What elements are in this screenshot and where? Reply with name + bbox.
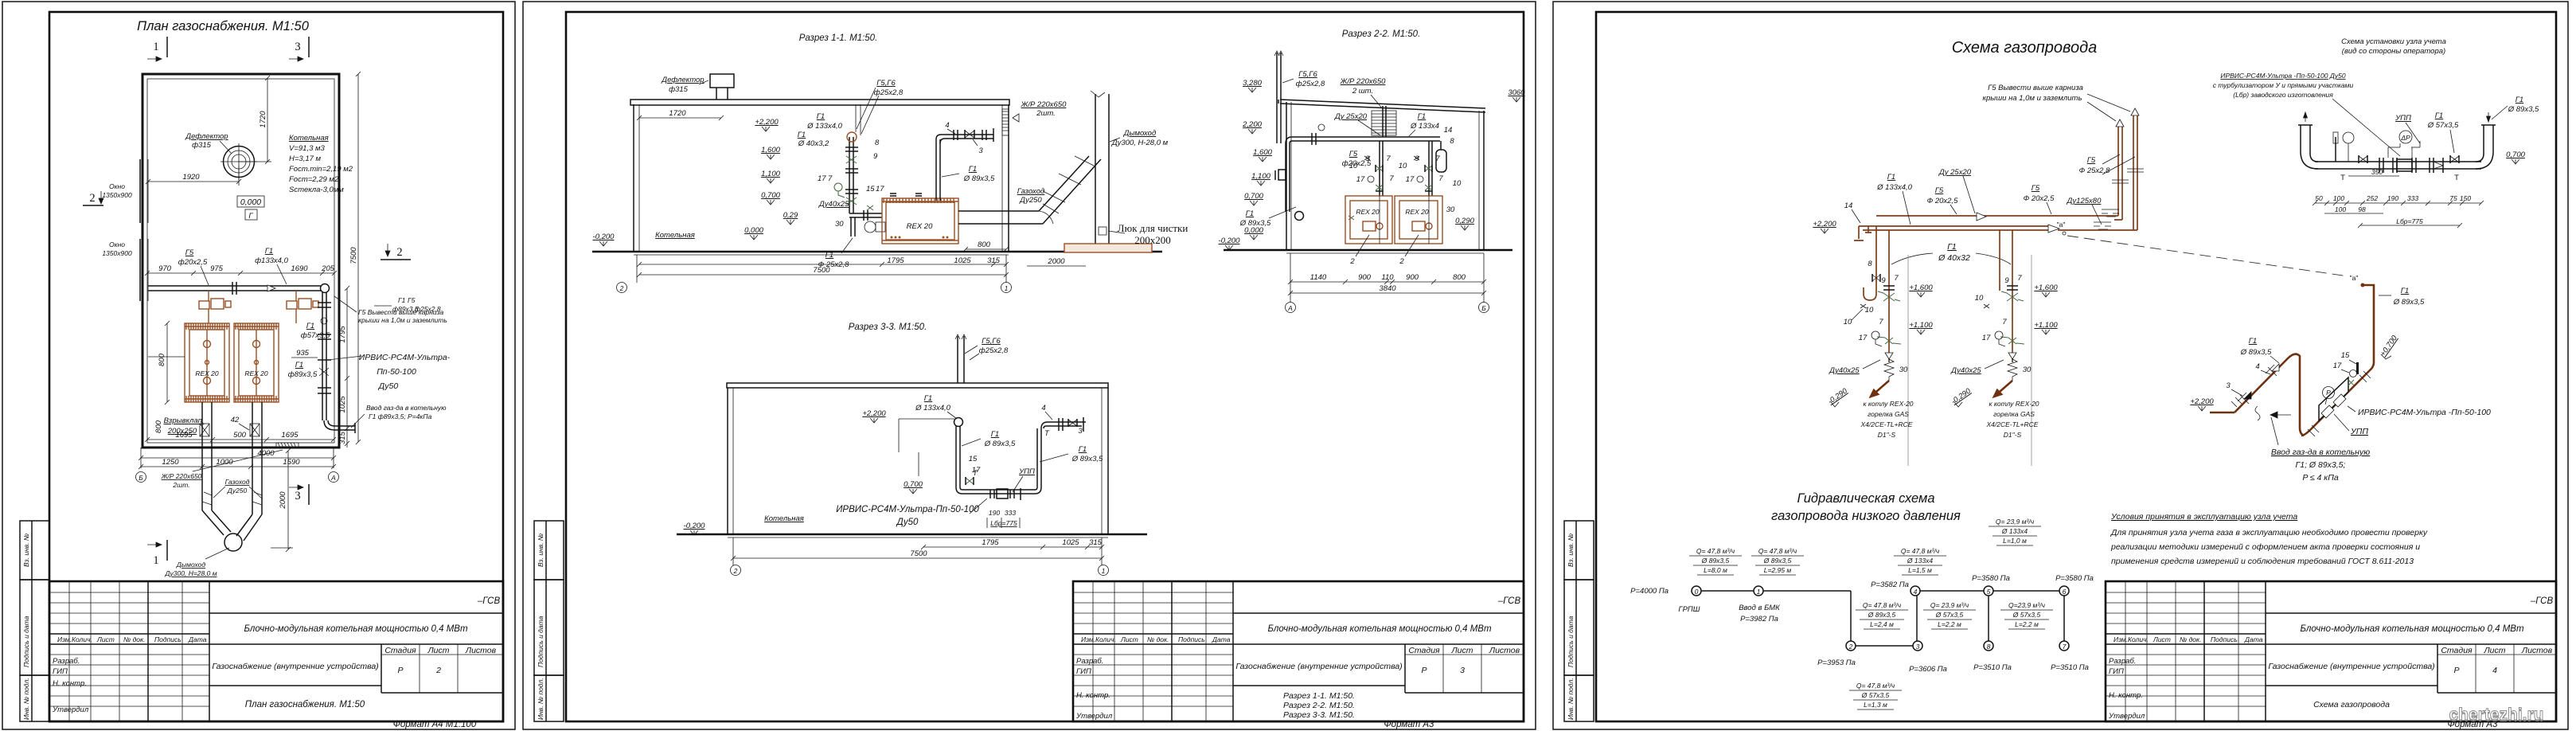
svg-text:98: 98 — [2358, 205, 2366, 213]
svg-text:1025: 1025 — [1062, 538, 1079, 547]
svg-text:H=3,17 м: H=3,17 м — [289, 154, 322, 163]
svg-text:17: 17 — [972, 466, 981, 475]
svg-text:Ж/Р 220х650: Ж/Р 220х650 — [161, 472, 202, 480]
svg-text:применения средств измерений и: применения средств измерений и соблюдени… — [2111, 557, 2414, 566]
svg-text:Подпись и дата: Подпись и дата — [22, 616, 30, 667]
svg-text:Разрез 3-3. М1:50.: Разрез 3-3. М1:50. — [849, 322, 927, 332]
svg-text:Подпись: Подпись — [154, 635, 181, 643]
svg-text:30: 30 — [1446, 205, 1455, 214]
svg-text:Г1: Г1 — [2401, 287, 2409, 295]
svg-text:Р=3510 Па: Р=3510 Па — [2051, 663, 2089, 672]
svg-text:Г1: Г1 — [398, 296, 406, 304]
svg-text:реализации методики измерений: реализации методики измерений с оформлен… — [2110, 542, 2420, 552]
svg-text:0: 0 — [1695, 588, 1699, 596]
svg-text:Взрывклап.: Взрывклап. — [164, 416, 205, 425]
svg-text:10: 10 — [1399, 162, 1407, 170]
svg-text:ф25х2,8: ф25х2,8 — [1296, 80, 1325, 88]
svg-text:ГИП: ГИП — [2109, 667, 2124, 676]
svg-text:REX 20: REX 20 — [907, 222, 933, 231]
svg-text:Ø 89х3,5: Ø 89х3,5 — [963, 174, 995, 183]
svg-text:крыши на 1,0м и заземлить: крыши на 1,0м и заземлить — [358, 316, 447, 324]
svg-text:ф25х2,8: ф25х2,8 — [874, 88, 904, 97]
svg-text:10: 10 — [1865, 306, 1874, 315]
svg-text:Н. контр.: Н. контр. — [53, 679, 87, 688]
svg-text:3: 3 — [295, 41, 300, 53]
svg-text:Условия принятия в эксплуатаци: Условия принятия в эксплуатацию узла уче… — [2110, 512, 2297, 522]
svg-text:Ж/Р 220х650: Ж/Р 220х650 — [1021, 100, 1067, 109]
svg-text:Изм.: Изм. — [2113, 635, 2128, 643]
svg-text:Лист: Лист — [1450, 646, 1473, 655]
svg-text:Разраб.: Разраб. — [53, 657, 80, 666]
svg-text:Ø 89х3,5: Ø 89х3,5 — [1239, 219, 1271, 228]
svg-text:2шт.: 2шт. — [1036, 109, 1056, 118]
svg-text:Р: Р — [397, 666, 403, 675]
svg-text:7: 7 — [1435, 154, 1440, 163]
svg-text:ф25х2,8: ф25х2,8 — [979, 346, 1009, 355]
svg-text:Г1: Г1 — [798, 131, 806, 139]
svg-text:Sстекла-3,0мм: Sстекла-3,0мм — [289, 186, 344, 194]
svg-text:8: 8 — [1868, 260, 1872, 268]
svg-text:Колич.: Колич. — [2128, 635, 2149, 643]
svg-text:Пп-50-100: Пп-50-100 — [377, 367, 416, 377]
svg-text:Подпись: Подпись — [2211, 635, 2238, 643]
svg-text:Листов: Листов — [1489, 646, 1520, 655]
svg-text:L=1,0 м: L=1,0 м — [2003, 537, 2027, 545]
svg-text:Дымоход: Дымоход — [176, 561, 205, 569]
svg-text:Р: Р — [1421, 666, 1427, 675]
svg-text:2: 2 — [89, 192, 95, 205]
svg-text:REX 20: REX 20 — [195, 369, 219, 377]
svg-text:Изм.: Изм. — [1081, 635, 1095, 643]
svg-text:1025: 1025 — [338, 396, 347, 413]
svg-text:Ду40х25: Ду40х25 — [818, 200, 849, 209]
svg-text:3060: 3060 — [1508, 88, 1525, 97]
svg-text:газопровода низкого давления: газопровода низкого давления — [1771, 509, 1961, 523]
svg-text:10: 10 — [1349, 162, 1358, 170]
svg-text:7: 7 — [828, 174, 833, 183]
svg-text:Разрез 2-2. М1:50.: Разрез 2-2. М1:50. — [1342, 29, 1421, 39]
svg-text:ф315: ф315 — [669, 85, 689, 94]
svg-text:0,700: 0,700 — [761, 191, 780, 200]
svg-text:P ≤ 4 кПа: P ≤ 4 кПа — [2302, 473, 2339, 483]
svg-text:Лист: Лист — [96, 635, 115, 643]
svg-text:ф57х3,5: ф57х3,5 — [301, 331, 330, 340]
svg-text:1,600: 1,600 — [761, 146, 780, 154]
svg-text:Ø 133х4: Ø 133х4 — [1410, 122, 1439, 131]
svg-text:190: 190 — [2387, 194, 2398, 202]
svg-text:Ду125х80: Ду125х80 — [2067, 197, 2102, 205]
svg-text:17: 17 — [1859, 334, 1868, 342]
svg-text:Листов: Листов — [465, 646, 497, 655]
svg-text:0,000: 0,000 — [744, 226, 763, 235]
svg-text:X4/2CE-TL+RCE: X4/2CE-TL+RCE — [1860, 420, 1913, 428]
svg-text:Ø 133х4,0: Ø 133х4,0 — [1876, 183, 1913, 192]
svg-text:9: 9 — [1881, 276, 1886, 285]
svg-text:Г1: Г1 — [1418, 112, 1426, 121]
svg-text:D1"-S: D1"-S — [2004, 431, 2022, 439]
svg-text:Г1: Г1 — [1887, 173, 1895, 182]
svg-text:УПП: УПП — [2395, 114, 2411, 123]
svg-text:14: 14 — [1444, 126, 1453, 135]
svg-text:1: 1 — [153, 41, 158, 53]
svg-text:17: 17 — [876, 185, 884, 193]
svg-text:Колич.: Колич. — [1095, 635, 1116, 643]
svg-text:0,700: 0,700 — [2506, 150, 2525, 159]
svg-text:2: 2 — [396, 246, 402, 259]
svg-text:Ø 89х3,5: Ø 89х3,5 — [1701, 557, 1730, 565]
svg-text:Изм.: Изм. — [57, 635, 72, 643]
svg-text:Утвердил: Утвердил — [1075, 712, 1113, 721]
svg-text:Ø 89х3,5: Ø 89х3,5 — [984, 440, 1016, 448]
svg-text:Дата: Дата — [1212, 635, 1231, 643]
svg-text:Дата: Дата — [188, 635, 207, 643]
svg-text:+1,600: +1,600 — [1909, 283, 1933, 292]
svg-text:–ГСВ: –ГСВ — [477, 596, 501, 606]
svg-text:190: 190 — [989, 509, 1000, 517]
svg-text:Блочно-модульная котельная мощ: Блочно-модульная котельная мощностью 0,4… — [2300, 624, 2524, 634]
svg-text:9: 9 — [1415, 154, 1419, 163]
svg-text:горелка GAS: горелка GAS — [1993, 410, 2035, 418]
svg-text:+1,600: +1,600 — [2034, 283, 2058, 292]
svg-text:Лист: Лист — [1120, 635, 1138, 643]
svg-text:Формат А3: Формат А3 — [1384, 720, 1435, 729]
svg-text:Q= 47,8 м³/ч: Q= 47,8 м³/ч — [1901, 547, 1940, 555]
svg-text:Схема установки узла учета: Схема установки узла учета — [2341, 37, 2446, 46]
svg-text:"а": "а" — [2057, 221, 2066, 229]
svg-text:1,100: 1,100 — [1251, 172, 1270, 181]
svg-text:0,290: 0,290 — [1455, 217, 1474, 225]
svg-text:900: 900 — [1406, 273, 1419, 282]
svg-text:Q= 47,8 м³/ч: Q= 47,8 м³/ч — [1856, 682, 1895, 690]
svg-text:14: 14 — [1844, 201, 1853, 210]
svg-text:Ду250: Ду250 — [1019, 196, 1042, 205]
svg-text:Ду250: Ду250 — [227, 487, 248, 494]
svg-text:333: 333 — [2407, 194, 2418, 202]
svg-text:30: 30 — [835, 220, 844, 229]
svg-text:L=1,5 м: L=1,5 м — [1908, 566, 1932, 574]
svg-text:1795: 1795 — [982, 538, 999, 547]
svg-text:Котельная: Котельная — [655, 231, 695, 240]
svg-text:№ док.: № док. — [123, 635, 145, 643]
svg-text:Г1: Г1 — [1079, 445, 1087, 454]
svg-text:Ф 20х2,5: Ф 20х2,5 — [2024, 194, 2055, 203]
svg-text:200х200: 200х200 — [1134, 234, 1171, 246]
svg-text:Газоход: Газоход — [1017, 187, 1045, 196]
svg-text:15: 15 — [2341, 351, 2350, 360]
svg-text:Q= 23,9 м³/ч: Q= 23,9 м³/ч — [1996, 518, 2035, 526]
svg-text:Дата: Дата — [2244, 635, 2263, 643]
svg-text:(Lбр) заводского изготовления: (Lбр) заводского изготовления — [2233, 91, 2333, 99]
svg-text:3: 3 — [2226, 381, 2231, 390]
svg-text:Г5,Г6: Г5,Г6 — [1298, 70, 1317, 79]
svg-text:Ø 133х4: Ø 133х4 — [2001, 527, 2028, 535]
svg-text:ГИП: ГИП — [53, 667, 68, 676]
svg-text:Г1: Г1 — [306, 322, 314, 330]
svg-text:5: 5 — [1987, 588, 1991, 596]
svg-text:Разрез 1-1. М1:50.: Разрез 1-1. М1:50. — [799, 33, 878, 43]
svg-text:+2,200: +2,200 — [755, 118, 779, 127]
svg-text:350: 350 — [2371, 168, 2383, 176]
svg-text:2000: 2000 — [1047, 257, 1065, 266]
svg-text:Ду 25х20: Ду 25х20 — [1938, 168, 1972, 177]
svg-text:150: 150 — [2460, 194, 2471, 202]
svg-text:L=2,95 м: L=2,95 м — [1764, 566, 1792, 574]
svg-text:7: 7 — [1389, 174, 1394, 183]
svg-text:7500: 7500 — [349, 247, 358, 264]
svg-text:Ø 57х3,5: Ø 57х3,5 — [1861, 691, 1890, 699]
svg-text:Ø 89х3,5: Ø 89х3,5 — [2393, 298, 2425, 307]
svg-text:Г1: Г1 — [2435, 111, 2443, 120]
svg-text:15: 15 — [969, 455, 978, 463]
svg-text:Для принятия узла учета газа в: Для принятия узла учета газа в эксплуата… — [2110, 528, 2428, 537]
svg-text:4: 4 — [1041, 404, 1045, 412]
svg-text:1250: 1250 — [162, 458, 179, 467]
svg-text:-0,200: -0,200 — [1219, 236, 1241, 245]
svg-text:2,200: 2,200 — [1242, 120, 1262, 129]
svg-text:+2,200: +2,200 — [2190, 397, 2214, 406]
svg-text:chertezhi.ru: chertezhi.ru — [2449, 706, 2543, 724]
svg-text:2: 2 — [435, 666, 441, 675]
svg-text:9: 9 — [2004, 276, 2009, 285]
svg-text:–ГСВ: –ГСВ — [2530, 596, 2554, 606]
svg-text:Ввод газ-да в котельную: Ввод газ-да в котельную — [2271, 448, 2370, 457]
svg-text:0,29: 0,29 — [783, 211, 798, 220]
svg-text:REX 20: REX 20 — [1405, 208, 1429, 216]
svg-text:Утвердил: Утвердил — [52, 706, 89, 714]
svg-text:ф20х2,5: ф20х2,5 — [178, 258, 208, 267]
svg-text:1795: 1795 — [338, 326, 347, 343]
svg-text:-0,200: -0,200 — [593, 233, 615, 241]
svg-text:800: 800 — [978, 240, 991, 249]
svg-text:7: 7 — [1879, 318, 1883, 326]
svg-text:2шт.: 2шт. — [172, 481, 189, 489]
svg-text:ГРПШ: ГРПШ — [1678, 605, 1700, 614]
svg-text:ф315: ф315 — [192, 141, 212, 150]
svg-text:REX 20: REX 20 — [1356, 208, 1380, 216]
svg-text:Стадия: Стадия — [384, 646, 416, 655]
svg-text:крыши на 1,0м и заземлить: крыши на 1,0м и заземлить — [1983, 94, 2082, 103]
svg-text:-0,200: -0,200 — [684, 522, 706, 530]
svg-text:1720: 1720 — [259, 111, 267, 128]
svg-text:Ø 133х4: Ø 133х4 — [1907, 557, 1933, 565]
svg-text:Схема газопровода: Схема газопровода — [2313, 700, 2390, 709]
svg-text:Q= 23,9 м³/ч: Q= 23,9 м³/ч — [1930, 601, 1969, 609]
svg-text:17: 17 — [1356, 175, 1365, 184]
svg-text:Г1 ф89х3,5; Р=4кПа: Г1 ф89х3,5; Р=4кПа — [369, 412, 432, 420]
svg-text:Инв. № подл.: Инв. № подл. — [537, 678, 544, 720]
svg-text:1350х900: 1350х900 — [102, 191, 132, 199]
svg-text:9: 9 — [1365, 154, 1370, 163]
svg-text:Г1: Г1 — [265, 247, 273, 256]
svg-text:2: 2 — [1349, 257, 1355, 266]
svg-text:2000: 2000 — [279, 491, 287, 510]
svg-text:Г1: Г1 — [295, 361, 303, 369]
svg-text:L=2,2 м: L=2,2 м — [2015, 620, 2039, 628]
svg-text:Г5: Г5 — [1935, 186, 1944, 195]
svg-text:Fост.min=2,19 м2: Fост.min=2,19 м2 — [289, 165, 353, 174]
svg-text:0,700: 0,700 — [904, 480, 923, 489]
svg-text:7: 7 — [1386, 154, 1391, 163]
svg-text:Котельная: Котельная — [764, 514, 804, 523]
svg-text:+2,200: +2,200 — [862, 409, 886, 418]
svg-text:1690: 1690 — [291, 264, 308, 273]
svg-text:Р=3982 Па: Р=3982 Па — [1740, 615, 1778, 623]
svg-text:Разрез 1-1. М1:50.: Разрез 1-1. М1:50. — [1283, 691, 1355, 701]
svg-text:горелка GAS: горелка GAS — [1868, 410, 1909, 418]
svg-text:Стадия: Стадия — [1408, 646, 1440, 655]
svg-text:Дефлектор: Дефлектор — [185, 132, 228, 141]
svg-text:8: 8 — [1450, 137, 1454, 146]
svg-text:315: 315 — [338, 431, 347, 444]
svg-text:1590: 1590 — [283, 458, 300, 467]
svg-text:Ø 89х3,5: Ø 89х3,5 — [1763, 557, 1792, 565]
svg-text:17: 17 — [1982, 334, 1991, 342]
svg-text:30: 30 — [2023, 365, 2032, 374]
svg-text:№ док.: № док. — [2180, 635, 2201, 643]
svg-text:Вз. инв. №: Вз. инв. № — [537, 534, 544, 567]
svg-text:Блочно-модульная котельная мощ: Блочно-модульная котельная мощностью 0,4… — [244, 624, 468, 634]
svg-text:Гидравлическая схема: Гидравлическая схема — [1797, 491, 1934, 506]
svg-text:ИРВИС-РС4М-Ультра -Пп-50-100: ИРВИС-РС4М-Ультра -Пп-50-100 — [2358, 408, 2491, 417]
svg-text:Q=23,9 м³/ч: Q=23,9 м³/ч — [2008, 601, 2045, 609]
svg-text:Инв. № подл.: Инв. № подл. — [1567, 678, 1575, 720]
svg-text:Ø 133х4,0: Ø 133х4,0 — [806, 122, 843, 131]
svg-text:L=2,4 м: L=2,4 м — [1870, 620, 1894, 628]
svg-text:100: 100 — [2335, 205, 2346, 213]
svg-text:4: 4 — [945, 121, 949, 130]
svg-text:ΔР: ΔР — [2400, 134, 2410, 142]
svg-text:X4/2CE-TL+RCE: X4/2CE-TL+RCE — [1986, 420, 2039, 428]
svg-text:Р=3606 Па: Р=3606 Па — [1909, 665, 1947, 674]
svg-text:Р: Р — [2453, 666, 2459, 675]
svg-text:1140: 1140 — [1310, 273, 1327, 282]
svg-text:Г5: Г5 — [185, 248, 194, 257]
svg-text:1695: 1695 — [175, 431, 193, 440]
svg-text:Ø 40х3,2: Ø 40х3,2 — [798, 139, 829, 148]
svg-text:315: 315 — [987, 256, 1001, 265]
svg-text:Стадия: Стадия — [2441, 646, 2473, 655]
svg-text:110: 110 — [1381, 273, 1394, 282]
svg-text:L=8,0 м: L=8,0 м — [1704, 566, 1727, 574]
svg-text:9: 9 — [873, 152, 878, 161]
svg-text:+1,100: +1,100 — [2034, 321, 2058, 330]
svg-text:3: 3 — [295, 490, 300, 502]
svg-text:Ввод в БМК: Ввод в БМК — [1739, 604, 1781, 612]
svg-text:Колич.: Колич. — [72, 635, 92, 643]
svg-text:100: 100 — [2333, 194, 2344, 202]
svg-text:2: 2 — [1848, 643, 1853, 651]
svg-text:Р=4000 Па: Р=4000 Па — [1630, 587, 1669, 596]
svg-text:4: 4 — [2255, 362, 2259, 371]
svg-text:Г1: Г1 — [817, 112, 825, 121]
svg-text:800: 800 — [154, 420, 163, 433]
svg-text:к котлу REX-20: к котлу REX-20 — [1989, 400, 2039, 408]
svg-text:ф133х4,0: ф133х4,0 — [255, 256, 288, 265]
svg-text:Лист: Лист — [2153, 635, 2171, 643]
svg-text:Газоснабжение (внутренние устр: Газоснабжение (внутренние устройства) — [1235, 662, 1402, 671]
svg-text:4: 4 — [1914, 588, 1918, 596]
svg-text:1: 1 — [1005, 284, 1009, 292]
svg-text:Г1: Г1 — [991, 430, 999, 439]
svg-text:Г5,Г6: Г5,Г6 — [876, 79, 896, 88]
svg-text:7: 7 — [2017, 274, 2022, 283]
svg-text:252: 252 — [2366, 194, 2378, 202]
svg-text:Подпись и дата: Подпись и дата — [1567, 616, 1575, 667]
svg-text:Блочно-модульная котельная мощ: Блочно-модульная котельная мощностью 0,4… — [1267, 624, 1492, 634]
svg-text:План газоснабжения. М1:50: План газоснабжения. М1:50 — [137, 19, 310, 33]
svg-text:Разрез 2-2. М1:50.: Разрез 2-2. М1:50. — [1283, 701, 1355, 710]
svg-text:Ø 89х3,5: Ø 89х3,5 — [2240, 348, 2272, 357]
svg-text:1350х900: 1350х900 — [102, 249, 132, 257]
svg-text:Ду 25х20: Ду 25х20 — [1334, 112, 1368, 121]
svg-text:3840: 3840 — [1379, 284, 1396, 293]
svg-text:Г5,Г6: Г5,Г6 — [982, 337, 1001, 346]
svg-text:8: 8 — [875, 139, 880, 147]
svg-text:Утвердил: Утвердил — [2108, 712, 2145, 721]
svg-text:ИРВИС-РС4М-Ультра-: ИРВИС-РС4М-Ультра- — [359, 353, 451, 362]
svg-text:Подпись и дата: Подпись и дата — [537, 616, 544, 667]
svg-text:ИРВИС-РС4М-Ультра-Пп-50-100: ИРВИС-РС4М-Ультра-Пп-50-100 — [836, 505, 979, 514]
svg-text:3: 3 — [978, 147, 983, 155]
svg-text:к котлу REX-20: к котлу REX-20 — [1863, 400, 1913, 408]
svg-text:Т: Т — [2340, 174, 2345, 182]
svg-text:935: 935 — [296, 349, 310, 358]
svg-text:30: 30 — [1899, 365, 1908, 374]
svg-text:Б: Б — [139, 474, 143, 482]
svg-text:975: 975 — [210, 264, 224, 273]
svg-text:Р=3582 Па: Р=3582 Па — [1871, 580, 1909, 589]
svg-text:УПП: УПП — [2350, 427, 2368, 436]
svg-text:6: 6 — [2063, 588, 2067, 596]
svg-text:Ду40х25: Ду40х25 — [1829, 366, 1860, 375]
svg-text:1,100: 1,100 — [761, 170, 780, 178]
svg-text:Лист: Лист — [427, 646, 449, 655]
svg-text:Г1; Ø 89х3,5;: Г1; Ø 89х3,5; — [2296, 460, 2346, 470]
svg-text:Разраб.: Разраб. — [2109, 657, 2136, 666]
svg-text:ф89х3,5: ф89х3,5 — [288, 370, 318, 379]
svg-text:Схема газопровода: Схема газопровода — [1952, 39, 2098, 57]
svg-text:7500: 7500 — [813, 266, 830, 275]
svg-text:с турбулизатором У и прямыми у: с турбулизатором У и прямыми участками — [2213, 81, 2354, 89]
svg-text:2: 2 — [619, 284, 624, 292]
svg-text:Ду300, Н-28,0 м: Ду300, Н-28,0 м — [1111, 139, 1169, 147]
svg-text:Lбр=775: Lбр=775 — [990, 519, 1017, 527]
svg-text:10: 10 — [1844, 318, 1852, 326]
svg-text:3,280: 3,280 — [1243, 79, 1262, 88]
svg-text:Подпись: Подпись — [1178, 635, 1205, 643]
svg-text:+1,100: +1,100 — [1909, 321, 1933, 330]
svg-text:42: 42 — [231, 416, 240, 424]
svg-text:А: А — [1287, 304, 1293, 312]
svg-text:1695: 1695 — [281, 431, 299, 440]
svg-text:Г1: Г1 — [825, 251, 833, 260]
svg-text:Р=3580 Па: Р=3580 Па — [2055, 574, 2094, 583]
svg-text:Q= 47,8 м³/ч: Q= 47,8 м³/ч — [1863, 601, 1902, 609]
svg-text:Ду40х25: Ду40х25 — [1950, 366, 1981, 375]
svg-text:Н. контр.: Н. контр. — [1076, 691, 1110, 700]
svg-text:Ø 89х3,5: Ø 89х3,5 — [1071, 455, 1103, 463]
svg-text:1720: 1720 — [669, 109, 686, 118]
svg-text:7500: 7500 — [910, 549, 927, 558]
svg-text:Ф 25х2,8: Ф 25х2,8 — [2079, 166, 2110, 175]
svg-text:Г1: Г1 — [924, 394, 932, 403]
svg-text:1,600: 1,600 — [1253, 148, 1272, 157]
svg-text:2: 2 — [1399, 257, 1404, 266]
svg-text:10: 10 — [1453, 179, 1462, 188]
svg-text:Т: Т — [2454, 174, 2459, 182]
svg-text:Ø 40х32: Ø 40х32 — [1938, 253, 1970, 263]
svg-text:315: 315 — [1089, 538, 1103, 547]
